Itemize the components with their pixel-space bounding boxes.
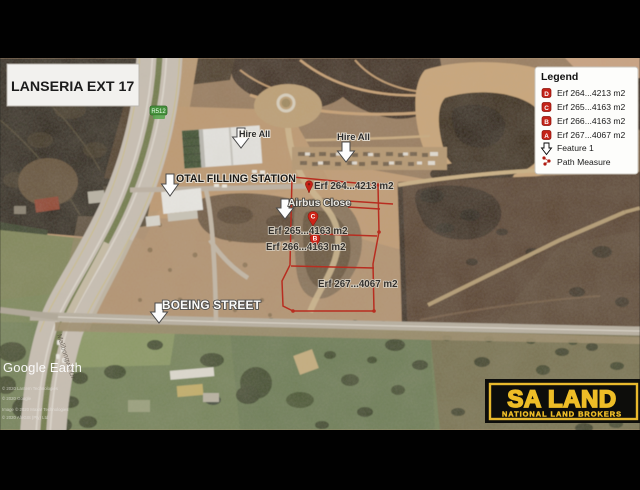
svg-text:LANSERIA EXT 17: LANSERIA EXT 17: [11, 79, 134, 95]
svg-text:Erf 267...4067 m2: Erf 267...4067 m2: [557, 130, 626, 140]
svg-text:OTAL FILLING STATION: OTAL FILLING STATION: [176, 173, 296, 185]
svg-text:Erf 265...4163 m2: Erf 265...4163 m2: [268, 226, 348, 237]
svg-text:© 2020 AfriGIS (Pty) Ltd: © 2020 AfriGIS (Pty) Ltd: [2, 415, 49, 420]
svg-text:Erf 264...4213 m2: Erf 264...4213 m2: [557, 88, 626, 98]
svg-text:Erf 266...4163 m2: Erf 266...4163 m2: [557, 116, 626, 126]
svg-text:Hire All: Hire All: [239, 129, 270, 139]
svg-text:NATIONAL LAND BROKERS: NATIONAL LAND BROKERS: [502, 410, 622, 419]
svg-text:D: D: [544, 91, 549, 98]
svg-text:BOEING STREET: BOEING STREET: [162, 298, 262, 312]
svg-text:Erf 266...4163 m2: Erf 266...4163 m2: [266, 242, 346, 253]
svg-text:Feature 1: Feature 1: [557, 143, 594, 153]
svg-text:A: A: [544, 133, 549, 140]
svg-text:R512: R512: [151, 109, 166, 115]
svg-text:Legend: Legend: [541, 71, 578, 83]
svg-text:© 2020 Lantern Technologies: © 2020 Lantern Technologies: [2, 386, 58, 391]
svg-text:B: B: [544, 119, 549, 126]
svg-text:C: C: [544, 105, 549, 112]
svg-text:C: C: [311, 214, 316, 221]
svg-text:Erf 267...4067 m2: Erf 267...4067 m2: [318, 279, 398, 290]
svg-text:Google Earth: Google Earth: [3, 360, 82, 375]
svg-text:Erf 265...4163 m2: Erf 265...4163 m2: [557, 102, 626, 112]
svg-text:Hire All: Hire All: [337, 132, 370, 143]
svg-text:Path Measure: Path Measure: [557, 157, 611, 167]
svg-text:Airbus Close: Airbus Close: [288, 198, 351, 209]
svg-text:© 2020 Google: © 2020 Google: [2, 396, 32, 401]
svg-text:Erf 264...4213 m2: Erf 264...4213 m2: [314, 181, 394, 192]
svg-text:Image © 2020 Maxar Technologie: Image © 2020 Maxar Technologies: [2, 407, 68, 412]
